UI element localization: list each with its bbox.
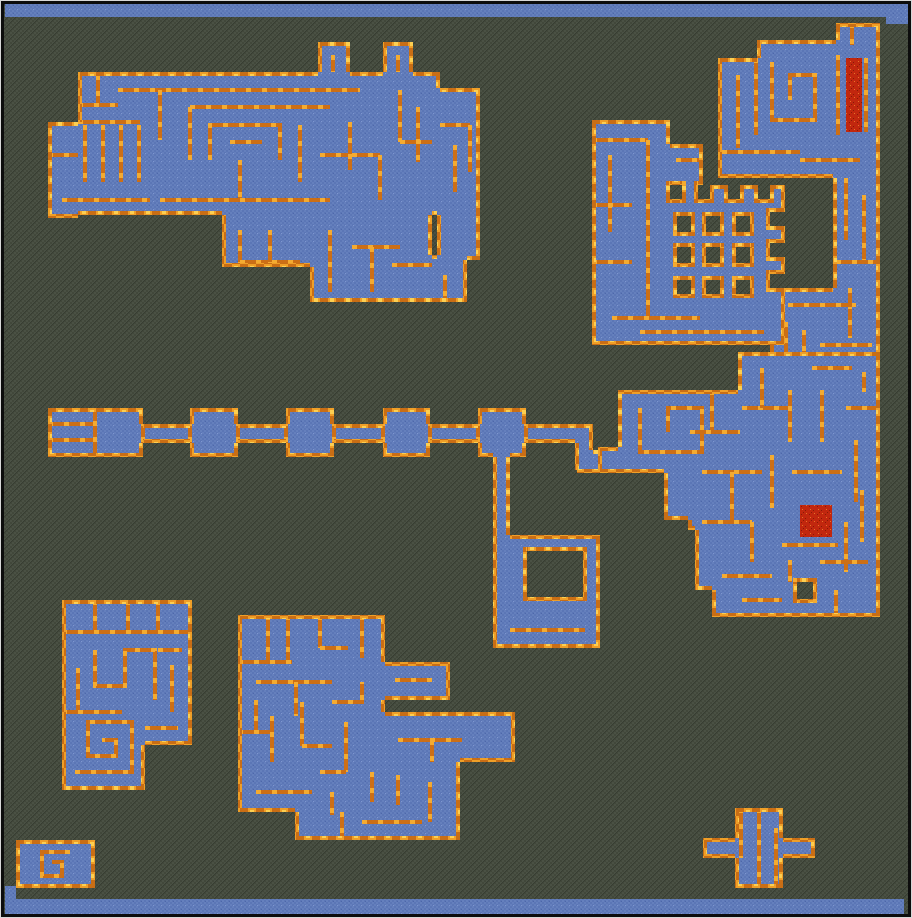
- dungeon-map-canvas: [0, 0, 912, 918]
- game-map: [0, 0, 912, 918]
